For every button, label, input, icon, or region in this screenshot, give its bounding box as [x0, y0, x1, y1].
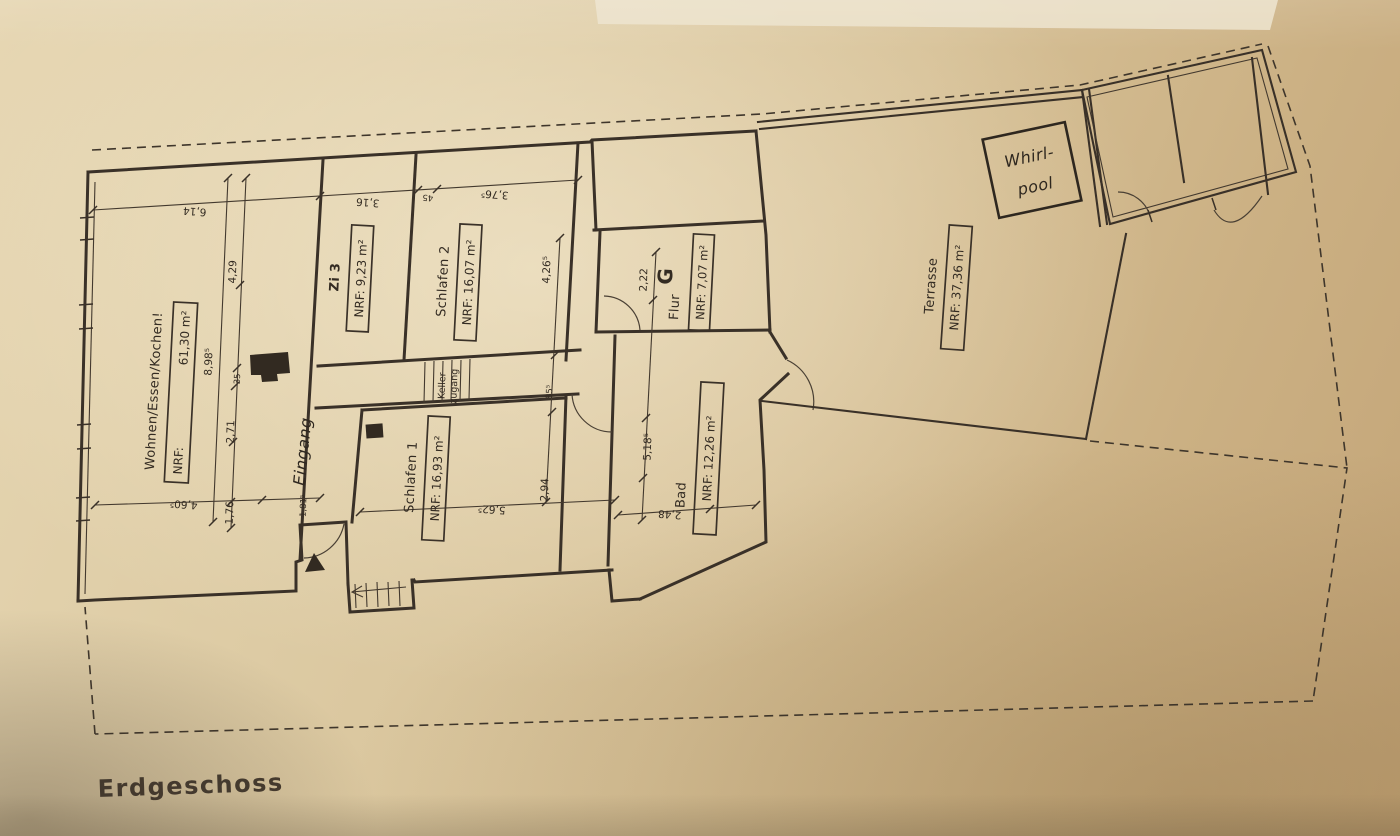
dim-3-16: 3,16: [355, 195, 379, 209]
nrf-value: NRF: 16,93 m²: [428, 435, 446, 522]
nrf-label: NRF:: [171, 447, 186, 475]
kellerzugang-label: Keller zugang: [436, 368, 460, 404]
dim-2-94: 2,94: [539, 478, 552, 502]
room-label-flur: G Flur NRF: 7,07 m²: [651, 232, 715, 331]
dim-4-29: 4,29: [227, 260, 240, 284]
room-name: Zi 3: [327, 262, 343, 291]
floorplan-photo: 6,14 4,29 8,98⁵ 35 2,71 1,76 4,60⁵ 1,81⁵…: [0, 0, 1400, 836]
dim-1-76: 1,76: [224, 501, 237, 525]
entrance-door-arc: [304, 524, 344, 558]
room-label-zi3: Zi 3 NRF: 9,23 m²: [325, 224, 373, 332]
entrance-triangle-icon: [305, 553, 325, 572]
entrance: [304, 524, 344, 572]
dim-2-71: 2,71: [225, 420, 238, 444]
room-label-schlafen2: Schlafen 2 NRF: 16,07 m²: [433, 223, 482, 341]
keller-text-1: Keller: [437, 372, 449, 399]
room-letter: G: [653, 268, 678, 286]
dim-45: 45: [422, 192, 433, 203]
nrf-value: NRF: 37,36 m²: [947, 244, 967, 331]
annex-rooms: [1082, 50, 1296, 224]
room-name: Bad: [673, 482, 689, 509]
eingang-text: Eingang: [290, 416, 316, 486]
room-name: Flur: [667, 293, 683, 320]
dim-1-81: 1,81⁵: [299, 495, 310, 518]
nrf-value: NRF: 16,07 m²: [460, 239, 478, 326]
dim-85: 85⁵: [545, 385, 555, 400]
dim-2-48: 2,48: [658, 507, 682, 521]
nrf-value: NRF: 12,26 m²: [700, 415, 718, 502]
floorplan-drawing: 6,14 4,29 8,98⁵ 35 2,71 1,76 4,60⁵ 1,81⁵…: [0, 0, 1400, 836]
dim-3-76: 3,76⁵: [481, 187, 509, 201]
dim-5-18: 5,18⁵: [642, 433, 655, 461]
room-name: Terrasse: [922, 257, 941, 315]
whirlpool-text-2: pool: [1015, 173, 1055, 199]
property-boundary: [85, 44, 1347, 734]
terrace: [758, 89, 1126, 439]
paper-edge-highlight: [595, 0, 1278, 30]
whirlpool-outline: [983, 122, 1082, 218]
dim-2-22: 2,22: [638, 268, 651, 292]
whirlpool-text-1: Whirl-: [1003, 142, 1056, 171]
room-name: Schlafen 2: [434, 245, 453, 317]
exterior-stairs: [352, 581, 406, 608]
dim-6-14: 6,14: [182, 204, 206, 218]
dim-35: 35: [233, 373, 243, 384]
nrf-value: NRF: 9,23 m²: [352, 239, 370, 318]
floor-title: Erdgeschoss: [97, 769, 284, 803]
dim-5-62: 5,62⁵: [478, 502, 506, 516]
room-name: Wohnen/Essen/Kochen!: [143, 312, 166, 471]
whirlpool-box: Whirl- pool: [983, 122, 1082, 218]
keller-text-2: zugang: [448, 369, 460, 404]
dim-8-98: 8,98⁵: [203, 348, 216, 376]
nrf-value: 61,30 m²: [176, 310, 193, 366]
nrf-value: NRF: 7,07 m²: [693, 245, 711, 321]
room-label-schlafen1: Schlafen 1 NRF: 16,93 m²: [401, 415, 450, 541]
dim-4-60: 4,60⁵: [170, 497, 198, 511]
room-label-terrasse: Terrasse NRF: 37,36 m²: [920, 223, 973, 350]
room-name: Schlafen 1: [402, 441, 421, 513]
dim-4-26: 4,26⁵: [541, 256, 554, 284]
room-label-wohnen: Wohnen/Essen/Kochen! NRF: 61,30 m²: [142, 301, 197, 483]
